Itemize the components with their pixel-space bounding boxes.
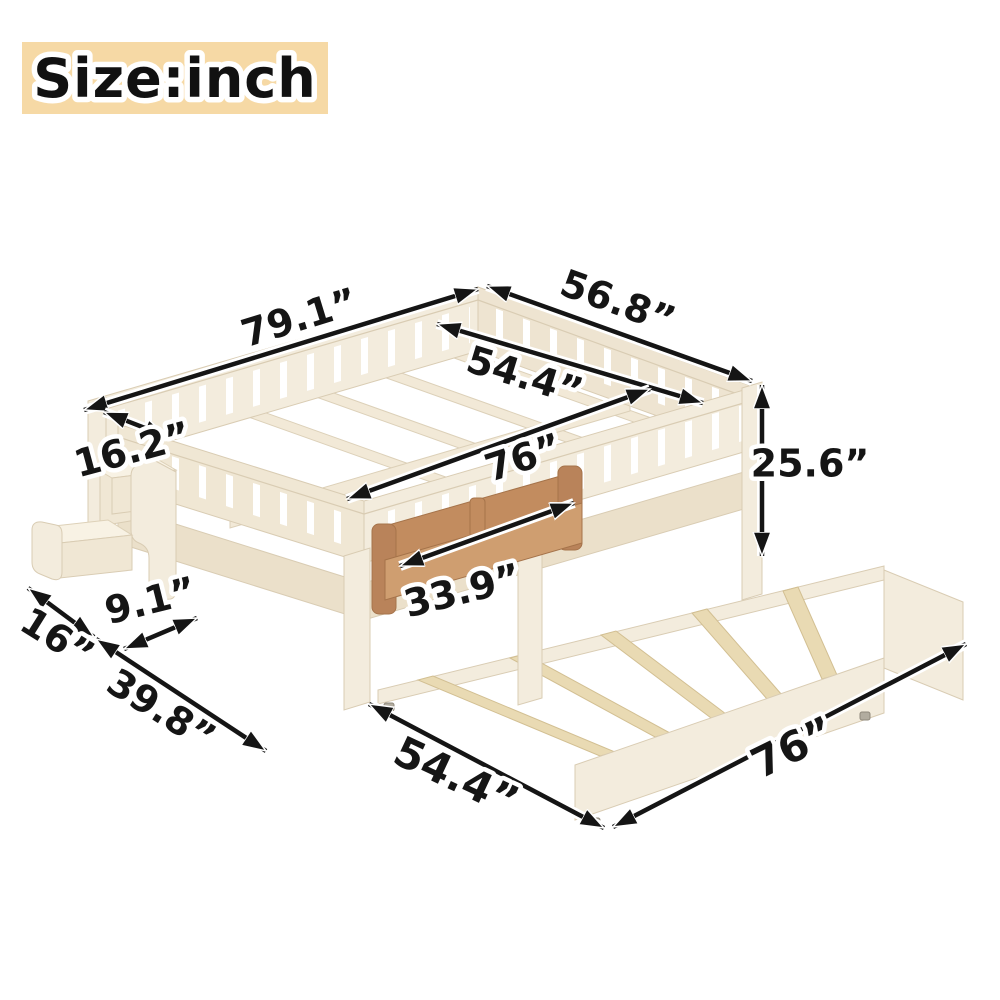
bed-dimension-illustration: 79.1” 56.8” 54.4” 16.2” 76” 25.6” 33.9” … xyxy=(0,0,1000,1000)
trundle-near-rail xyxy=(575,658,884,820)
stool-lower-step-front xyxy=(60,535,132,578)
trundle-slat xyxy=(692,609,782,699)
stool-left-side-panel xyxy=(32,522,62,580)
trundle-slat xyxy=(601,631,726,718)
dimension-diagram: 79.1” 56.8” 54.4” 16.2” 76” 25.6” 33.9” … xyxy=(0,0,1000,1000)
size-unit-label: Size:inch xyxy=(33,47,316,110)
trundle-caster xyxy=(860,712,870,720)
size-unit-badge: Size:inch xyxy=(22,42,328,114)
dimension-label-trundle-width: 54.4” xyxy=(386,726,526,826)
trundle-slat xyxy=(783,587,837,679)
dimension-label-overall-height: 25.6” xyxy=(751,442,870,486)
front-corner-leg xyxy=(344,548,370,710)
